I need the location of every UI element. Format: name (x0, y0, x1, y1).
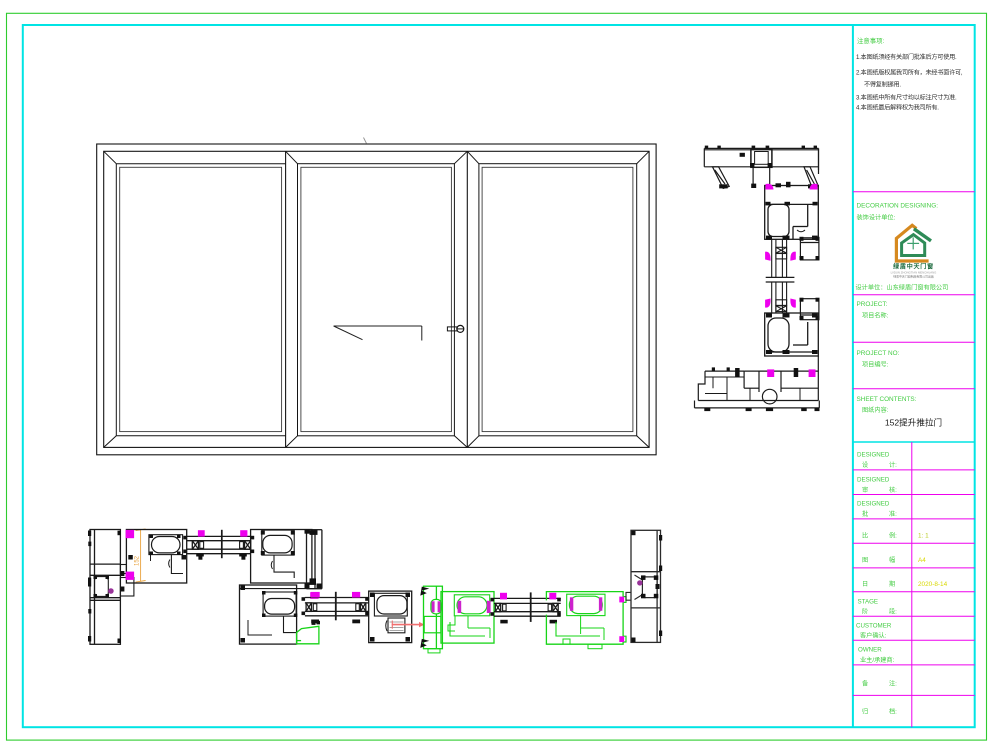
svg-text:项目名称:: 项目名称: (862, 312, 889, 320)
svg-text:图幅: 图幅 (862, 556, 895, 564)
svg-text:注意事项:: 注意事项: (857, 36, 885, 45)
svg-text:2020-8-14: 2020-8-14 (918, 581, 948, 588)
svg-text:152: 152 (135, 555, 141, 566)
svg-text:A4: A4 (918, 557, 926, 564)
svg-text:PROJECT:: PROJECT: (857, 301, 888, 308)
svg-text:4.本图纸最后解释权为我司所有.: 4.本图纸最后解释权为我司所有. (856, 104, 939, 112)
svg-text:客户确认:: 客户确认: (860, 632, 887, 640)
svg-text:3.本图纸中所有尺寸均以标注尺寸为准.: 3.本图纸中所有尺寸均以标注尺寸为准. (856, 94, 957, 102)
svg-text:绿盾中天门窗: 绿盾中天门窗 (893, 263, 934, 271)
svg-text:审核:: 审核: (862, 486, 897, 494)
svg-text:PROJECT NO:: PROJECT NO: (857, 350, 900, 357)
svg-text:绿盾中天门窗制品有限公司出品: 绿盾中天门窗制品有限公司出品 (893, 273, 934, 278)
svg-text:SHEET CONTENTS:: SHEET CONTENTS: (857, 396, 917, 403)
svg-text:DESIGNED: DESIGNED (857, 501, 890, 508)
svg-text:DESIGNED: DESIGNED (857, 452, 890, 459)
svg-text:STAGE: STAGE (858, 599, 879, 606)
svg-text:日期: 日期 (862, 580, 895, 588)
svg-text:152提升推拉门: 152提升推拉门 (885, 417, 942, 428)
svg-text:比例:: 比例: (862, 532, 897, 540)
svg-text:设计单位：山东绿盾门窗有限公司: 设计单位：山东绿盾门窗有限公司 (856, 284, 949, 292)
svg-text:图纸内容:: 图纸内容: (862, 406, 889, 414)
svg-text:批准:: 批准: (862, 510, 897, 518)
svg-text:归档:: 归档: (862, 708, 897, 716)
svg-text:1.本图纸须经有关部门批准后方可使用.: 1.本图纸须经有关部门批准后方可使用. (856, 53, 957, 61)
svg-text:业主/承建商:: 业主/承建商: (860, 656, 895, 664)
svg-text:项目编号:: 项目编号: (862, 361, 889, 369)
svg-text:2.本图纸版权属我司所有，未经书面许可,: 2.本图纸版权属我司所有，未经书面许可, (856, 69, 963, 77)
svg-text:DESIGNED: DESIGNED (857, 477, 890, 484)
svg-text:装饰设计单位:: 装饰设计单位: (857, 214, 896, 222)
svg-text:设计:: 设计: (862, 461, 897, 469)
svg-text:DECORATION DESIGNING:: DECORATION DESIGNING: (857, 203, 939, 210)
svg-text:不得复制挪用.: 不得复制挪用. (864, 81, 901, 89)
svg-text:备注:: 备注: (862, 680, 897, 688)
svg-text:CUSTOMER: CUSTOMER (856, 623, 892, 630)
svg-text:阶段:: 阶段: (862, 608, 897, 616)
svg-text:OWNER: OWNER (858, 647, 882, 654)
svg-text:1: 1: 1: 1 (918, 533, 929, 540)
